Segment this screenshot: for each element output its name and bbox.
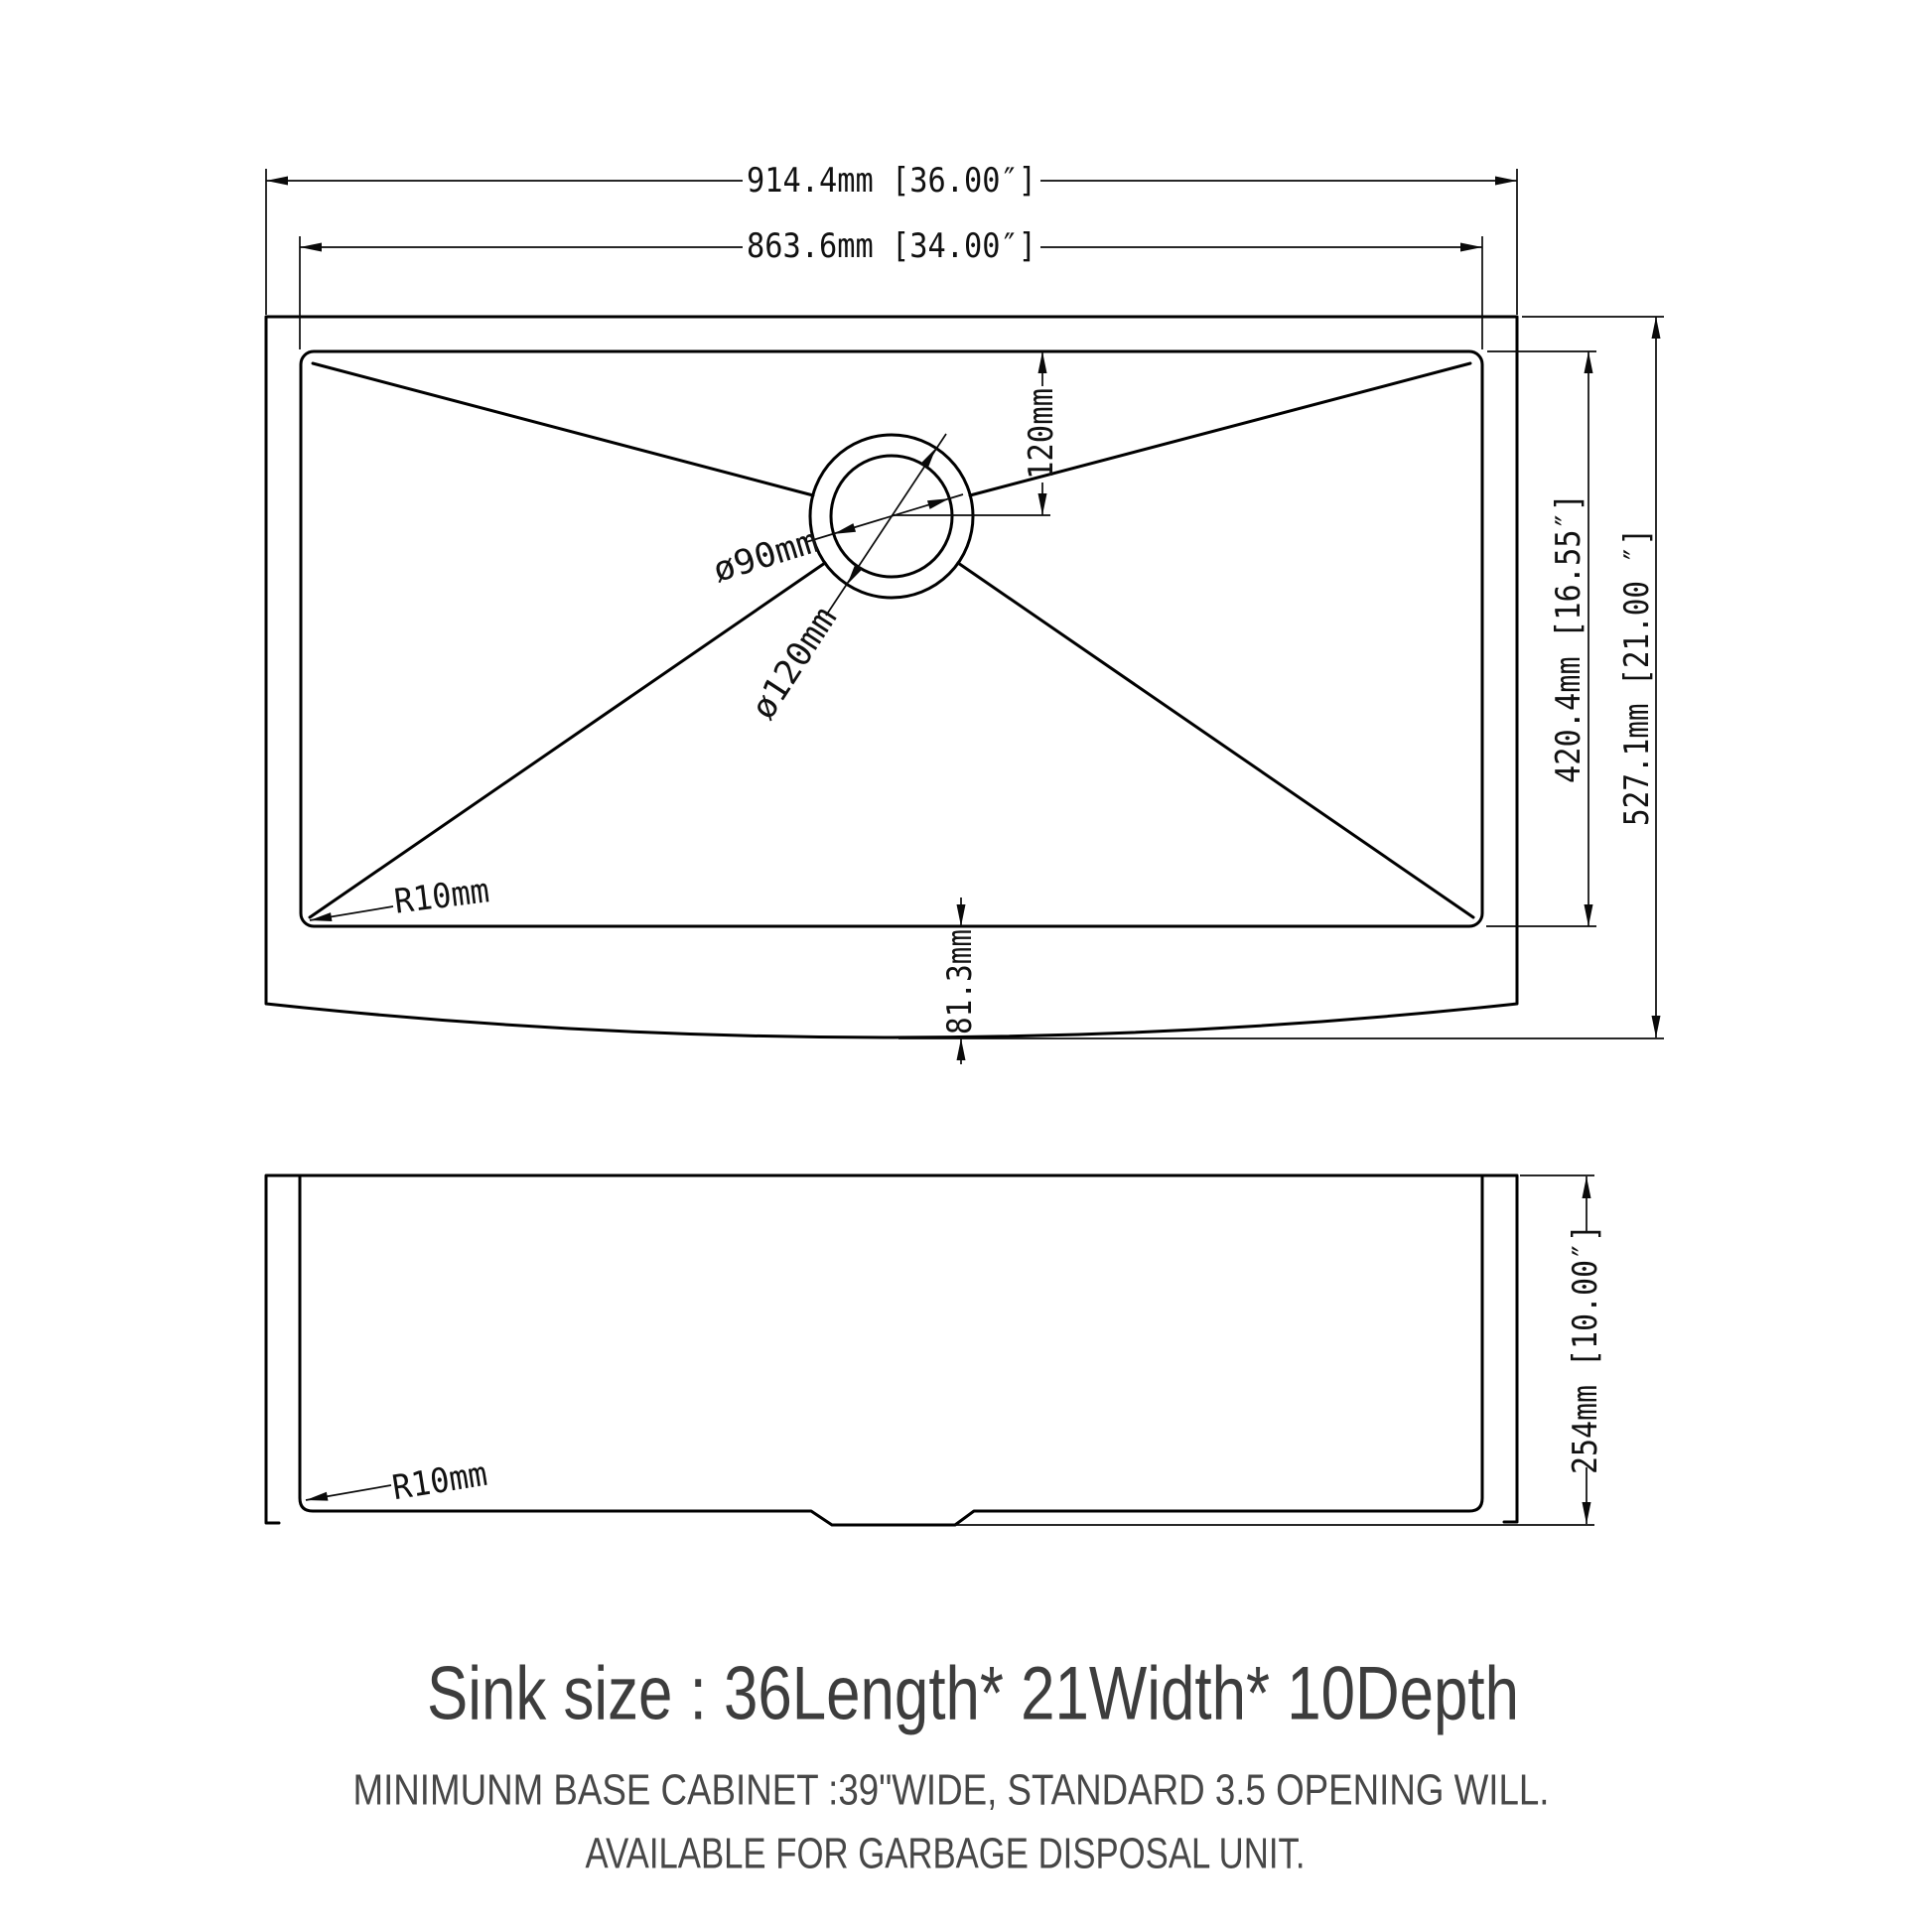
arrowhead bbox=[957, 1038, 966, 1060]
dim-text-height: 254mm [10.00″] bbox=[1566, 1224, 1605, 1474]
caption-title: Sink size : 36Length* 21Width* 10Depth bbox=[427, 1652, 1519, 1736]
dim-text-corner-radius-side: R10mm bbox=[389, 1454, 489, 1509]
arrowhead bbox=[1652, 317, 1661, 339]
bowl-diagonal-bottom-left bbox=[310, 563, 825, 917]
dim-text-drain-offset: 120mm bbox=[1022, 388, 1061, 480]
arrowhead bbox=[1652, 1016, 1661, 1037]
dim-text-overall-width: 914.4mm [36.00″] bbox=[747, 161, 1036, 201]
diagram-svg: 914.4mm [36.00″] 863.6mm [34.00″] 420.4m… bbox=[0, 0, 1932, 1932]
bowl-diagonal-bottom-right bbox=[958, 563, 1473, 917]
bowl-diagonal-top-left bbox=[313, 363, 813, 495]
top-view: 914.4mm [36.00″] 863.6mm [34.00″] 420.4m… bbox=[266, 161, 1664, 1064]
caption: Sink size : 36Length* 21Width* 10Depth M… bbox=[353, 1652, 1550, 1878]
dim-text-bowl-width: 863.6mm [34.00″] bbox=[747, 226, 1036, 266]
arrowhead bbox=[1585, 351, 1593, 373]
caption-note-line2: AVAILABLE FOR GARBAGE DISPOSAL UNIT. bbox=[586, 1830, 1306, 1878]
arrowhead bbox=[300, 243, 322, 252]
dim-text-drain-inner: ø90mm bbox=[709, 521, 823, 591]
top-view-outer-outline bbox=[266, 317, 1517, 1037]
arrowhead bbox=[1038, 351, 1047, 373]
arrowhead bbox=[1583, 1176, 1591, 1198]
arrowhead bbox=[1460, 243, 1482, 252]
arrowhead bbox=[1038, 493, 1047, 515]
side-view: 254mm [10.00″] R10mm bbox=[266, 1175, 1605, 1525]
arrowhead bbox=[957, 904, 966, 926]
dim-text-corner-radius-top: R10mm bbox=[392, 871, 491, 921]
arrowhead bbox=[1585, 904, 1593, 926]
sink-dimension-diagram: 914.4mm [36.00″] 863.6mm [34.00″] 420.4m… bbox=[0, 0, 1932, 1932]
arrowhead bbox=[305, 1492, 328, 1505]
dim-text-apron-depth: 81.3mm bbox=[940, 929, 980, 1035]
arrowhead bbox=[266, 177, 288, 186]
arrowhead bbox=[1495, 177, 1517, 186]
dim-text-overall-depth: 527.1mm [21.00 ″] bbox=[1617, 528, 1657, 826]
dim-text-drain-outer: ø120mm bbox=[744, 600, 845, 726]
arrowhead bbox=[1583, 1502, 1591, 1524]
caption-note-line1: MINIMUNM BASE CABINET :39"WIDE, STANDARD… bbox=[353, 1766, 1550, 1815]
top-view-bowl-outline bbox=[301, 351, 1482, 926]
dim-text-bowl-depth: 420.4mm [16.55″] bbox=[1549, 493, 1588, 783]
